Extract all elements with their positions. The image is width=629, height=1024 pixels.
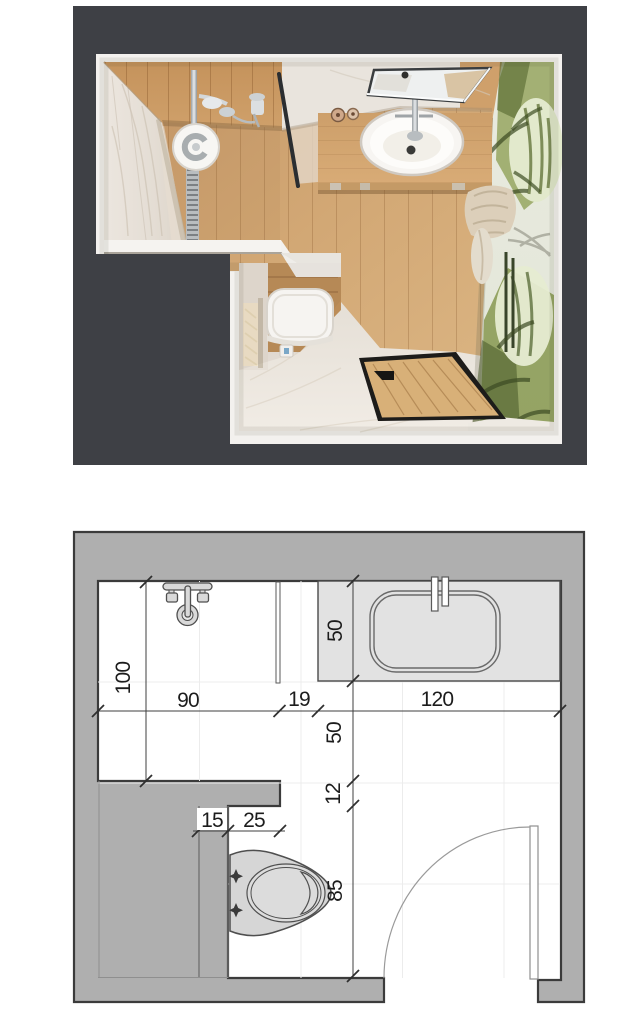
svg-text:50: 50 [324,620,347,642]
svg-text:100: 100 [112,662,135,695]
svg-text:12: 12 [322,783,345,805]
svg-text:85: 85 [324,880,347,902]
svg-text:90: 90 [177,689,199,712]
svg-text:15: 15 [201,809,223,832]
svg-text:19: 19 [288,688,310,711]
svg-text:120: 120 [421,688,454,711]
svg-text:25: 25 [243,809,265,832]
svg-text:50: 50 [323,722,346,744]
